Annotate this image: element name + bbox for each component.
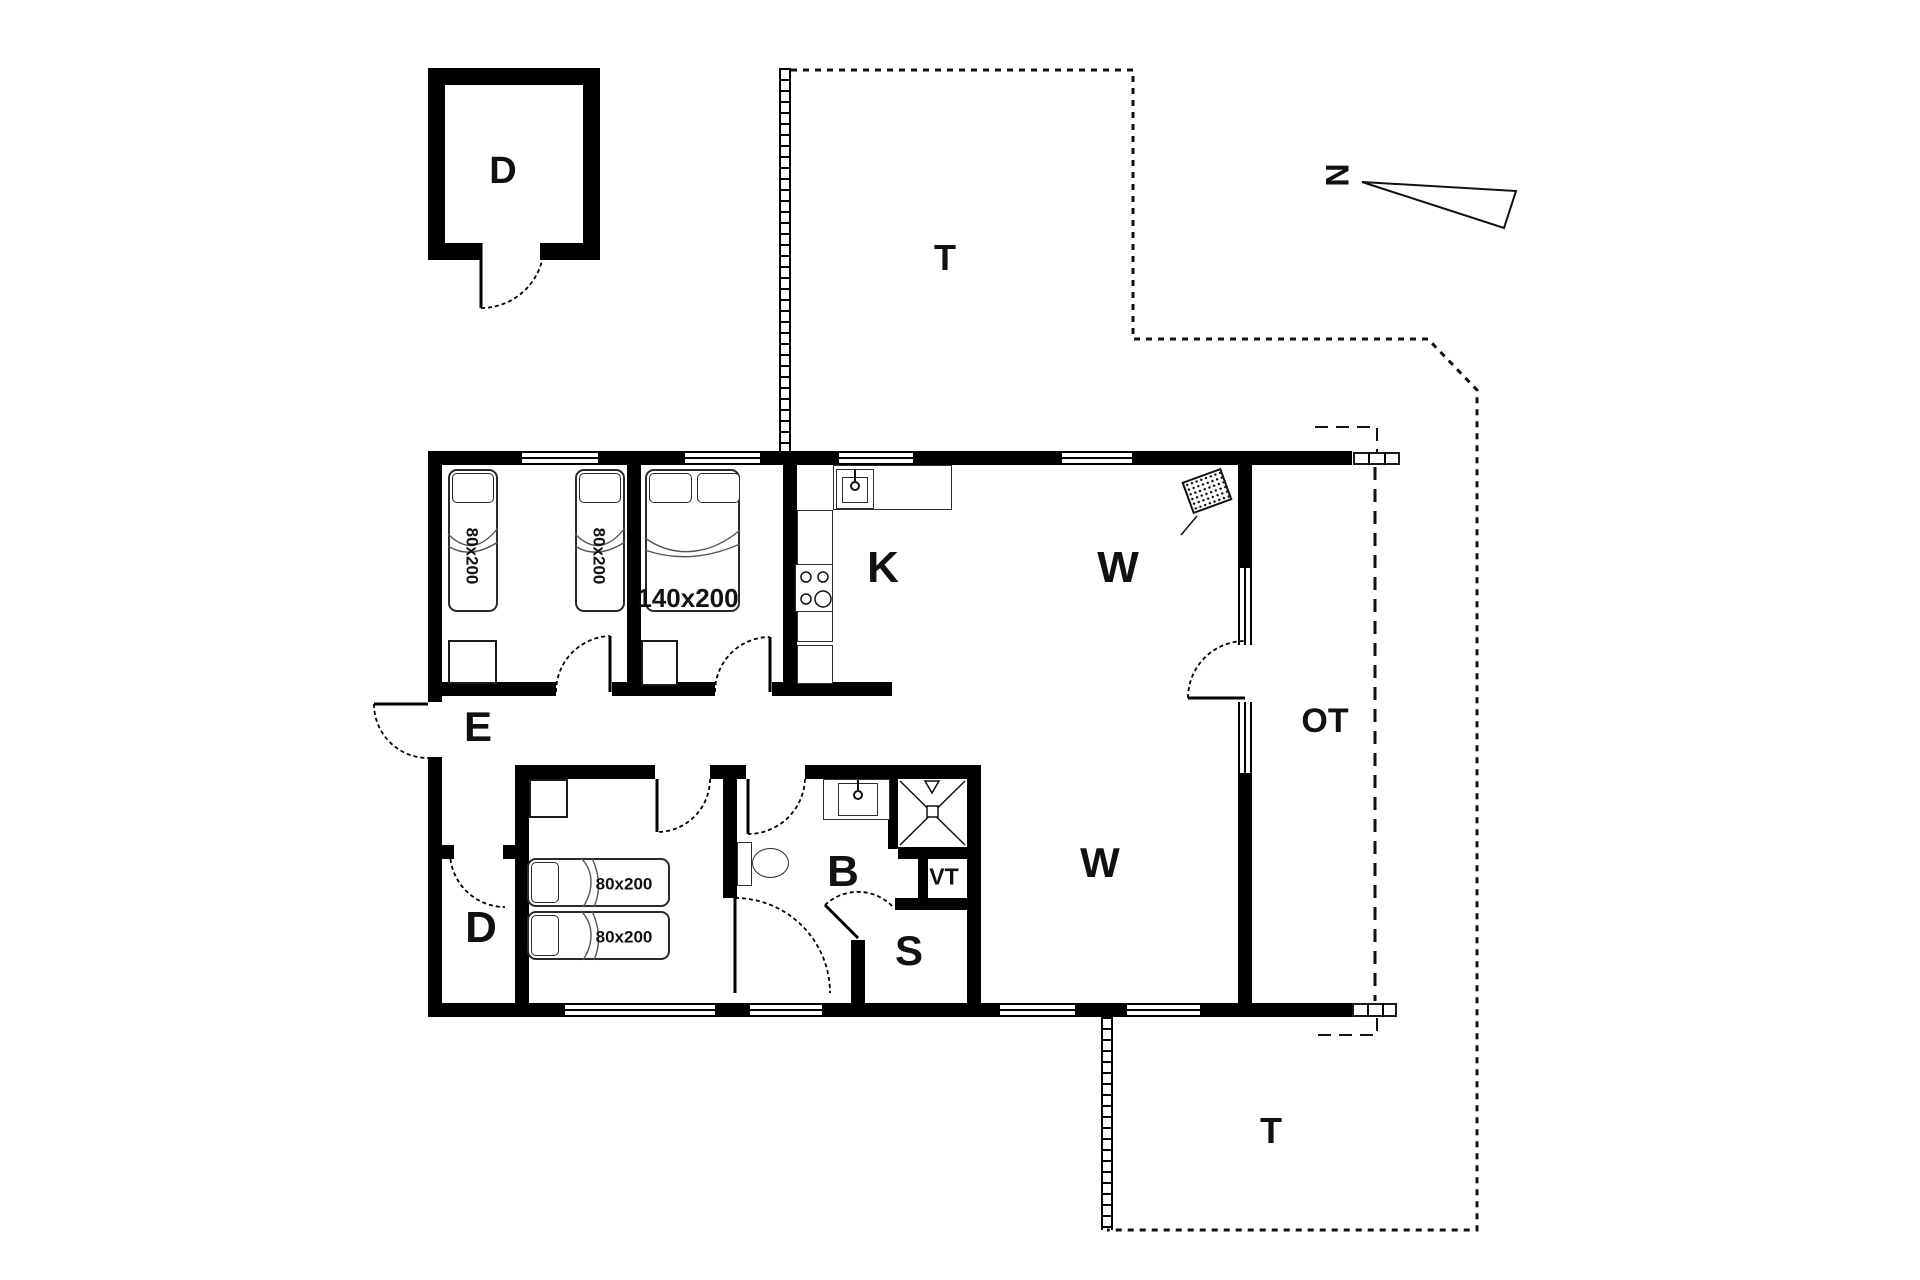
- wall-bedroom3-bathroom: [723, 779, 737, 898]
- wood-stove-door: [1181, 516, 1197, 535]
- bed-single-4-pillow: [531, 915, 559, 956]
- closet-kitchen: [797, 645, 833, 684]
- floor-plan: D T N T OT E D K W W B S VT 80x200 80x20…: [0, 0, 1920, 1280]
- bed-double-pillow-1: [649, 473, 692, 503]
- bed-single-2-pillow: [579, 473, 621, 503]
- outbuilding-label: D: [489, 152, 516, 190]
- bed1-size-label: 80x200: [464, 528, 481, 585]
- wall-bath-living: [967, 765, 981, 1003]
- bedroom2-door-opening: [715, 682, 772, 696]
- bedroom1-door-opening: [556, 682, 612, 696]
- wall-bedroom1-bedroom2: [627, 465, 641, 696]
- living-north-label: W: [1097, 546, 1139, 590]
- wall-vt-west: [918, 859, 928, 898]
- outbuilding-door-opening: [482, 243, 540, 260]
- window-kitchen: [839, 451, 913, 465]
- wall-shower-vt: [898, 847, 967, 859]
- kitchen-stove: [795, 564, 833, 612]
- bedroom3-door-opening: [655, 765, 710, 779]
- shower-symbol: [900, 781, 965, 845]
- bed3-size-label: 80x200: [596, 876, 653, 893]
- site-boundary-dotted: [791, 70, 1477, 1230]
- bed4-size-label: 80x200: [596, 929, 653, 946]
- terrace-top-label: T: [934, 240, 956, 276]
- closet-bedroom3: [529, 779, 568, 818]
- wall-sauna-post: [851, 940, 865, 1003]
- toilet-bowl: [752, 848, 789, 878]
- wood-stove: [1181, 468, 1232, 514]
- bed-single-1-pillow: [452, 473, 494, 503]
- fence-south: [1101, 1017, 1113, 1230]
- window-living-south-1: [1000, 1003, 1075, 1017]
- storage-door-post-left: [442, 845, 454, 859]
- north-arrow: [1362, 182, 1516, 228]
- bed-double-pillow-2: [697, 473, 740, 503]
- window-bedroom3: [565, 1003, 715, 1017]
- terrace-post-ne: [1353, 452, 1400, 465]
- bathroom-door-opening: [746, 765, 805, 779]
- terrace-post-ne-mullion2: [1384, 452, 1386, 465]
- terrace-post-se: [1352, 1003, 1397, 1017]
- window-living-south-2: [1127, 1003, 1200, 1017]
- toilet-tank: [737, 842, 752, 886]
- north-label: N: [1321, 163, 1353, 186]
- window-east-lower: [1238, 702, 1252, 773]
- sauna-label: S: [895, 930, 923, 972]
- kitchen-sink-basin: [842, 477, 868, 503]
- terrace-bottom-label: T: [1260, 1113, 1282, 1149]
- covered-terrace-notch-top: [1315, 427, 1377, 452]
- utility-label: VT: [929, 866, 958, 889]
- window-bathroom: [750, 1003, 822, 1017]
- fence-north: [779, 68, 791, 451]
- closet-bedroom1: [448, 640, 497, 684]
- terrace-post-se-mullion1: [1367, 1003, 1369, 1017]
- bath-sink: [838, 783, 878, 816]
- covered-terrace-label: OT: [1301, 704, 1348, 738]
- kitchen-label: K: [867, 546, 899, 590]
- entrance-door-opening: [428, 702, 442, 757]
- storage-door-post-right: [503, 845, 515, 859]
- bed2-size-label: 80x200: [591, 528, 608, 585]
- entrance-label: E: [464, 706, 492, 748]
- window-bedroom1: [522, 451, 598, 465]
- faucet-symbols: [851, 470, 862, 799]
- terrace-post-ne-mullion1: [1368, 452, 1370, 465]
- covered-terrace-notch-bottom: [1318, 1017, 1377, 1035]
- wall-vt-south: [895, 898, 967, 910]
- closet-bedroom2: [641, 640, 678, 686]
- bathroom-label: B: [827, 850, 859, 894]
- living-south-label: W: [1080, 842, 1120, 884]
- storage-label: D: [465, 906, 497, 950]
- bed-single-3-pillow: [531, 862, 559, 903]
- plan-annotations: [0, 0, 1920, 1280]
- window-living-north: [1062, 451, 1132, 465]
- window-bedroom2: [685, 451, 760, 465]
- terrace-post-se-mullion2: [1382, 1003, 1384, 1017]
- window-east-upper: [1238, 568, 1252, 645]
- double-bed-size-label: 140x200: [637, 585, 738, 611]
- terrace-door-opening: [1238, 645, 1252, 702]
